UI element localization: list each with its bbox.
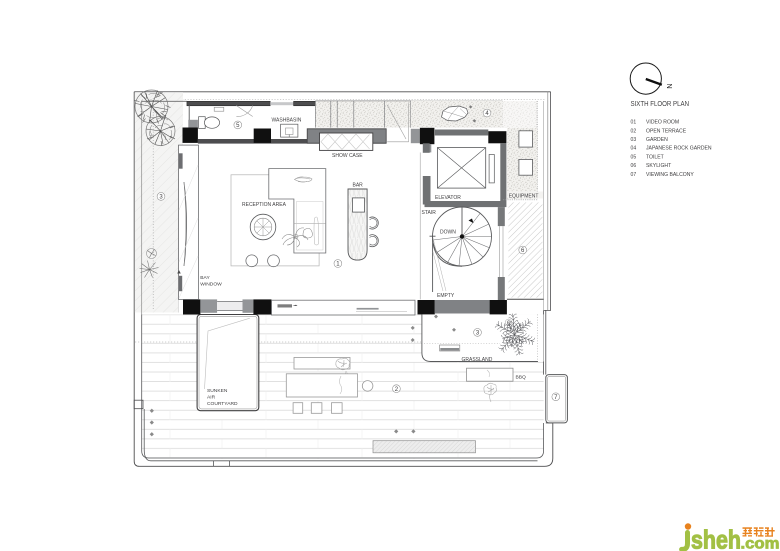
- svg-text:SHOW CASE: SHOW CASE: [332, 153, 363, 159]
- svg-text:07: 07: [631, 172, 637, 178]
- svg-text:DOWN: DOWN: [440, 229, 456, 235]
- svg-text:N: N: [665, 84, 672, 89]
- svg-text:GRASSLAND: GRASSLAND: [462, 357, 493, 363]
- svg-text:VIDEO ROOM: VIDEO ROOM: [646, 120, 679, 126]
- svg-text:01: 01: [631, 120, 637, 126]
- svg-text:02: 02: [631, 128, 637, 134]
- svg-text:06: 06: [631, 163, 637, 169]
- svg-text:sheh: sheh: [691, 525, 741, 551]
- svg-text:GARDEN: GARDEN: [646, 137, 668, 143]
- svg-text:SKYLIGHT: SKYLIGHT: [646, 163, 671, 169]
- svg-text:EQUIPMENT: EQUIPMENT: [509, 193, 539, 199]
- svg-text:BAY: BAY: [200, 275, 210, 281]
- svg-text:SIXTH FLOOR PLAN: SIXTH FLOOR PLAN: [631, 99, 690, 108]
- svg-text:STAIR: STAIR: [422, 210, 437, 216]
- svg-text:WASHBASIN: WASHBASIN: [272, 118, 302, 124]
- svg-text:TOILET: TOILET: [646, 154, 664, 160]
- svg-text:.com: .com: [741, 536, 780, 551]
- svg-text:AIR: AIR: [207, 394, 216, 400]
- svg-text:RECEPTION AREA: RECEPTION AREA: [242, 202, 287, 208]
- svg-text:BAR: BAR: [353, 182, 364, 188]
- svg-text:WINDOW: WINDOW: [200, 282, 222, 288]
- svg-text:04: 04: [631, 146, 637, 152]
- svg-text:ELEVATOR: ELEVATOR: [435, 195, 461, 201]
- svg-text:SUNKEN: SUNKEN: [207, 388, 228, 394]
- svg-text:COURTYARD: COURTYARD: [207, 401, 238, 407]
- svg-text:BBQ: BBQ: [516, 375, 527, 381]
- svg-text:JAPANESE ROCK GARDEN: JAPANESE ROCK GARDEN: [646, 146, 712, 152]
- svg-text:05: 05: [631, 154, 637, 160]
- svg-text:OPEN TERRACE: OPEN TERRACE: [646, 128, 687, 134]
- svg-text:03: 03: [631, 137, 637, 143]
- svg-text:EMPTY: EMPTY: [437, 293, 455, 299]
- svg-text:VIEWING BALCONY: VIEWING BALCONY: [646, 172, 694, 178]
